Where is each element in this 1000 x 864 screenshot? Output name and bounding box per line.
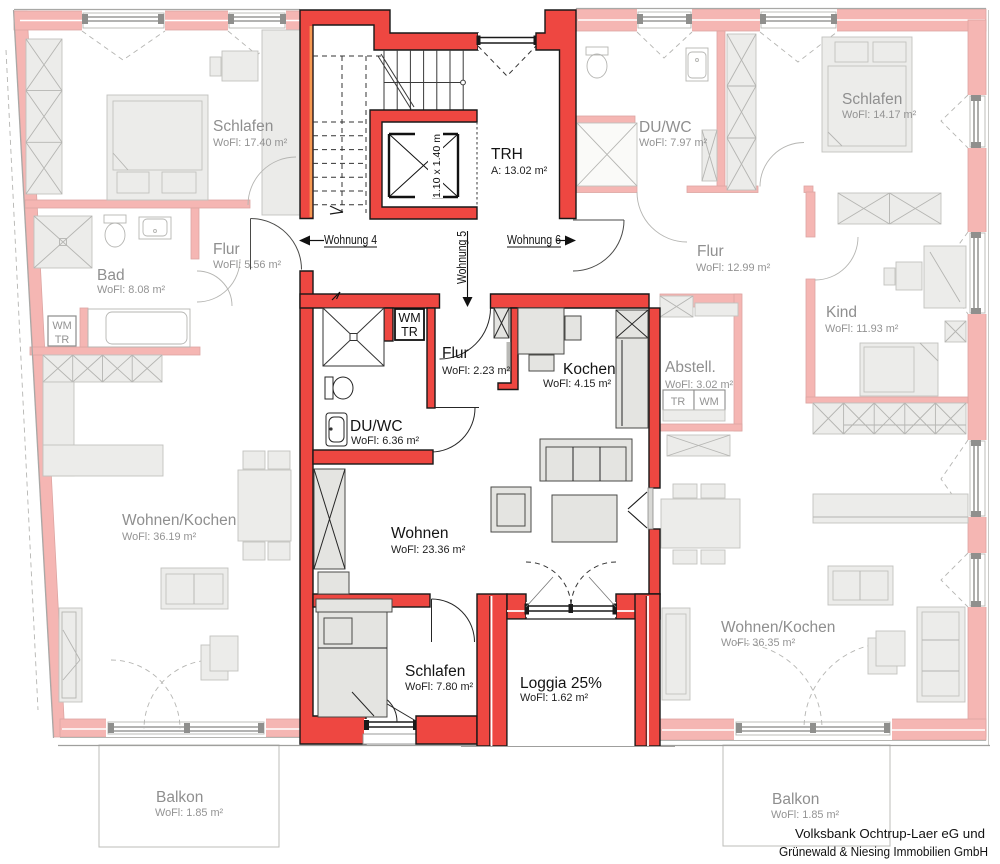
svg-text:Schlafen: Schlafen	[405, 663, 465, 680]
svg-text:Schlafen: Schlafen	[842, 91, 902, 108]
svg-text:WM: WM	[52, 320, 71, 332]
svg-text:WoFl: 3.02 m²: WoFl: 3.02 m²	[665, 379, 734, 391]
svg-text:WoFl: 7.80 m²: WoFl: 7.80 m²	[405, 681, 474, 693]
svg-text:Flur: Flur	[697, 243, 724, 260]
svg-text:Wohnen/Kochen: Wohnen/Kochen	[122, 512, 236, 529]
svg-text:WoFl: 1.85 m²: WoFl: 1.85 m²	[771, 809, 840, 821]
svg-text:WoFl: 8.08 m²: WoFl: 8.08 m²	[97, 284, 166, 296]
svg-text:Wohnung 6: Wohnung 6	[507, 232, 561, 247]
svg-text:WoFl: 12.99 m²: WoFl: 12.99 m²	[696, 262, 771, 274]
svg-text:DU/WC: DU/WC	[350, 418, 403, 435]
svg-text:WM: WM	[699, 396, 718, 408]
svg-text:WoFl: 2.23 m²: WoFl: 2.23 m²	[442, 365, 511, 377]
svg-text:Kochen: Kochen	[563, 361, 616, 378]
svg-text:DU/WC: DU/WC	[639, 119, 692, 136]
svg-text:Abstell.: Abstell.	[665, 359, 716, 376]
svg-text:Balkon: Balkon	[772, 791, 819, 808]
svg-text:Flur: Flur	[442, 345, 469, 362]
svg-text:WoFl: 14.17 m²: WoFl: 14.17 m²	[842, 109, 917, 121]
svg-text:Loggia 25%: Loggia 25%	[520, 675, 602, 692]
svg-text:TR: TR	[401, 325, 418, 339]
svg-text:Balkon: Balkon	[156, 789, 203, 806]
svg-text:A: 13.02 m²: A: 13.02 m²	[491, 165, 548, 177]
svg-text:WoFl: 11.93 m²: WoFl: 11.93 m²	[825, 323, 899, 335]
svg-text:Schlafen: Schlafen	[213, 118, 273, 135]
svg-text:WoFl: 7.97 m²: WoFl: 7.97 m²	[639, 137, 708, 149]
svg-text:Bad: Bad	[97, 267, 125, 284]
svg-text:TR: TR	[671, 396, 686, 408]
svg-text:Flur: Flur	[213, 241, 240, 258]
svg-text:TRH: TRH	[491, 146, 523, 163]
svg-text:WoFl: 1.62 m²: WoFl: 1.62 m²	[520, 692, 589, 704]
svg-text:Kind: Kind	[826, 304, 857, 321]
svg-text:WoFl: 36.19 m²: WoFl: 36.19 m²	[122, 531, 197, 543]
svg-text:WoFl: 17.40 m²: WoFl: 17.40 m²	[213, 137, 288, 149]
svg-text:TR: TR	[55, 334, 70, 346]
svg-text:1.10 x 1.40 m: 1.10 x 1.40 m	[431, 134, 443, 198]
svg-text:Wohnen: Wohnen	[391, 525, 448, 542]
svg-text:WoFl: 1.85 m²: WoFl: 1.85 m²	[155, 807, 224, 819]
svg-text:WoFl: 5.56 m²: WoFl: 5.56 m²	[213, 259, 282, 271]
svg-text:Volksbank Ochtrup-Laer eG und: Volksbank Ochtrup-Laer eG und	[795, 826, 985, 841]
svg-text:WoFl: 4.15 m²: WoFl: 4.15 m²	[543, 378, 612, 390]
svg-text:WoFl: 36.35 m²: WoFl: 36.35 m²	[721, 637, 796, 649]
svg-text:WoFl: 6.36 m²: WoFl: 6.36 m²	[351, 435, 420, 447]
svg-text:Wohnung 4: Wohnung 4	[324, 232, 377, 247]
svg-text:WoFl: 23.36 m²: WoFl: 23.36 m²	[391, 544, 466, 556]
svg-text:WM: WM	[398, 311, 420, 325]
svg-text:Grünewald & Niesing Immobilien: Grünewald & Niesing Immobilien GmbH	[779, 844, 988, 859]
svg-text:Wohnung 5: Wohnung 5	[454, 231, 469, 284]
svg-text:Wohnen/Kochen: Wohnen/Kochen	[721, 619, 835, 636]
